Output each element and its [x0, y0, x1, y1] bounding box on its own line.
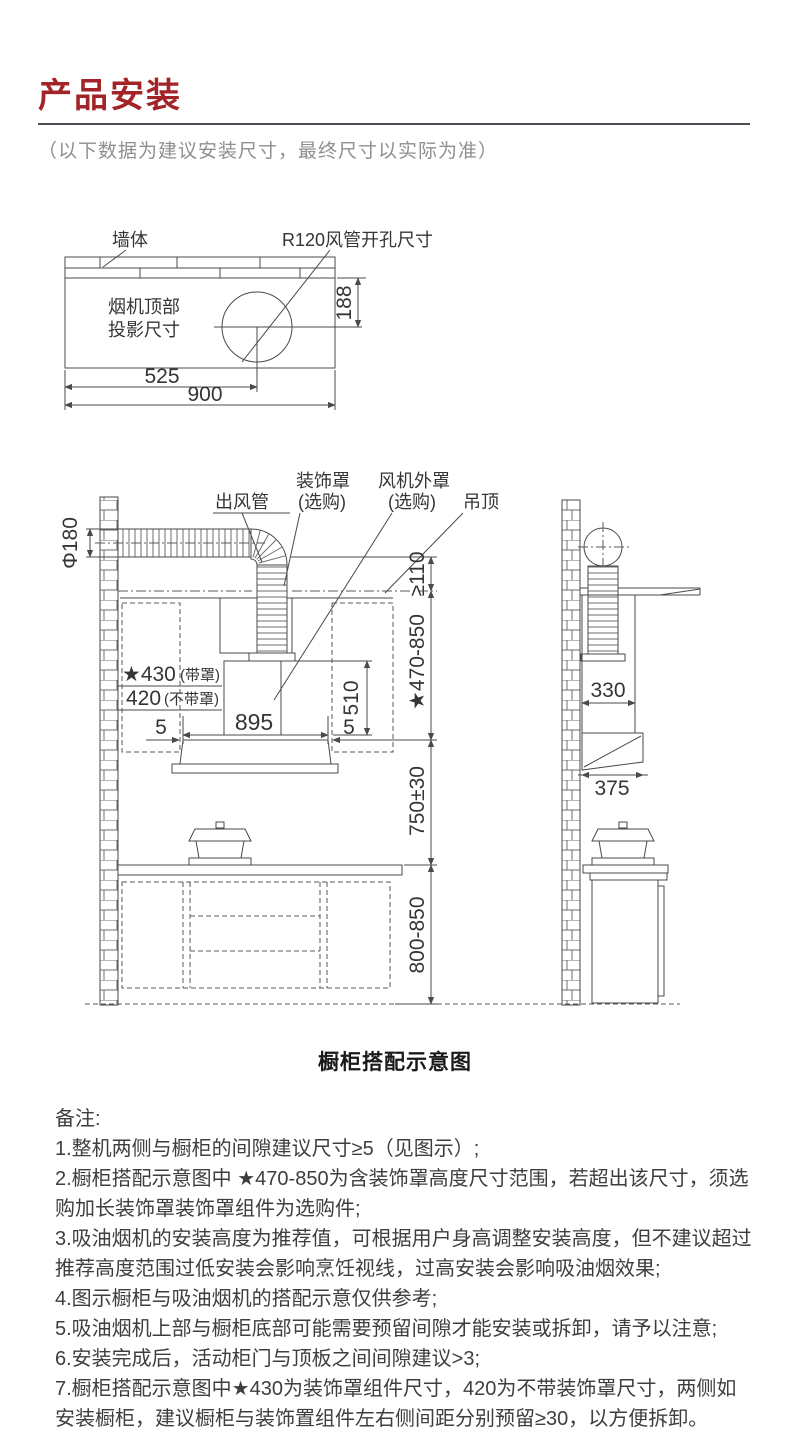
svg-text:525: 525 — [144, 365, 179, 388]
svg-text:(不带罩): (不带罩) — [164, 691, 219, 708]
notes-section: 备注: 1.整机两侧与橱柜的间隙建议尺寸≥5（见图示）; 2.橱柜搭配示意图中 … — [55, 1104, 752, 1434]
note-item-7: 7.橱柜搭配示意图中★430为装饰罩组件尺寸，420为不带装饰罩尺寸，两侧如安装… — [55, 1374, 752, 1434]
svg-text:装饰罩: 装饰罩 — [296, 471, 350, 491]
note-item-1: 1.整机两侧与橱柜的间隙建议尺寸≥5（见图示）; — [55, 1134, 752, 1164]
dim-right-chain: ≥110 ★470-850 750±30 800-850 — [291, 551, 437, 1004]
side-view: 330 375 — [562, 500, 700, 1005]
diagram-caption: 橱柜搭配示意图 — [0, 1046, 790, 1076]
note-item-5: 5.吸油烟机上部与橱柜底部可能需要预留间隙才能安装或拆卸，请予以注意; — [55, 1314, 752, 1344]
dim-depth-labels: ★430 (带罩) 420 (不带罩) — [118, 663, 222, 710]
duct-hole-label: R120风管开孔尺寸 — [282, 230, 433, 250]
front-base-cabinet — [122, 882, 390, 988]
wall-bricks-top — [65, 257, 335, 278]
top-projection-diagram: 烟机顶部 投影尺寸 墙体 R120风管开孔尺寸 188 525 — [65, 230, 433, 410]
side-wall — [562, 500, 580, 1005]
wall-label: 墙体 — [112, 230, 148, 250]
svg-text:5: 5 — [343, 716, 355, 739]
dim-525: 525 — [65, 365, 257, 392]
note-item-2: 2.橱柜搭配示意图中 ★470-850为含装饰罩高度尺寸范围，若超出该尺寸，须选… — [55, 1164, 752, 1224]
front-pot — [189, 822, 251, 858]
svg-text:Φ180: Φ180 — [59, 517, 82, 569]
note-item-3: 3.吸油烟机的安装高度为推荐值，可根据用户身高调整安装高度，但不建议超过推荐高度… — [55, 1224, 752, 1284]
dim-side-gap-left: 5 — [146, 716, 179, 740]
dim-hood-width: 895 — [183, 709, 328, 744]
svg-text:风机外罩: 风机外罩 — [378, 471, 450, 491]
svg-text:(带罩): (带罩) — [180, 667, 220, 684]
svg-text:(选购): (选购) — [298, 492, 346, 512]
svg-text:188: 188 — [333, 285, 356, 320]
dim-188: 188 — [333, 278, 366, 327]
svg-text:895: 895 — [235, 709, 273, 735]
side-duct — [581, 566, 625, 661]
upper-cabinet-right — [332, 603, 393, 752]
svg-text:≥110: ≥110 — [406, 551, 429, 596]
svg-text:5: 5 — [155, 716, 167, 739]
svg-text:420: 420 — [126, 687, 161, 710]
side-base-cabinet — [592, 880, 664, 1003]
svg-text:★430: ★430 — [122, 663, 176, 686]
exhaust-duct-vertical — [249, 565, 295, 661]
svg-text:出风管: 出风管 — [215, 492, 269, 512]
note-item-6: 6.安装完成后，活动柜门与顶板之间间隙建议>3; — [55, 1344, 752, 1374]
svg-text:900: 900 — [187, 383, 222, 406]
projection-label-line2: 投影尺寸 — [108, 320, 180, 340]
hood-body — [172, 740, 338, 773]
svg-text:(选购): (选购) — [388, 492, 436, 512]
projection-label-line1: 烟机顶部 — [108, 297, 180, 317]
hood-top-projection-outline — [65, 278, 335, 368]
svg-text:375: 375 — [594, 777, 629, 800]
note-item-4: 4.图示橱柜与吸油烟机的搭配示意仅供参考; — [55, 1284, 752, 1314]
svg-text:330: 330 — [590, 679, 625, 702]
dim-900: 900 — [65, 370, 335, 410]
manual-page: 产品安装 （以下数据为建议安装尺寸，最终尺寸以实际为准） — [0, 0, 790, 1450]
svg-text:750±30: 750±30 — [406, 766, 429, 836]
svg-text:510: 510 — [340, 680, 363, 715]
label-decorative-cover: 装饰罩 (选购) — [284, 471, 350, 586]
side-hood-body: 375 — [578, 733, 648, 800]
svg-text:800-850: 800-850 — [406, 896, 429, 973]
front-wall — [100, 497, 118, 1005]
installation-drawings: 烟机顶部 投影尺寸 墙体 R120风管开孔尺寸 188 525 — [0, 0, 790, 1040]
side-pot — [592, 822, 654, 865]
front-counter — [118, 858, 402, 875]
svg-text:吊顶: 吊顶 — [463, 492, 499, 512]
dim-side-gap-right: 5 — [333, 716, 366, 740]
notes-heading: 备注: — [55, 1104, 752, 1134]
side-counter — [583, 865, 668, 880]
svg-text:★470-850: ★470-850 — [406, 614, 429, 710]
